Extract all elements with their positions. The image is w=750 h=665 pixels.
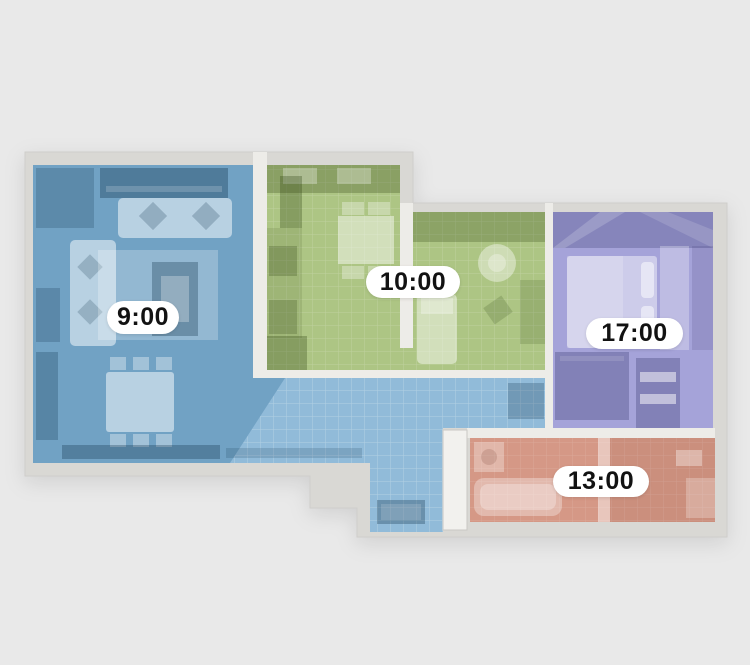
curtain xyxy=(337,168,371,184)
wardrobe-rail xyxy=(106,186,222,192)
shelf-unit xyxy=(36,168,94,228)
time-label-bathroom[interactable]: 13:00 xyxy=(553,466,649,497)
doormat-inner xyxy=(381,504,421,520)
wardrobe xyxy=(100,168,228,198)
hall-cabinet xyxy=(508,383,544,419)
low-cabinet xyxy=(226,448,362,458)
dresser xyxy=(555,352,629,420)
bathtub-inner xyxy=(480,484,556,510)
shelf xyxy=(640,394,676,404)
desk xyxy=(520,280,545,344)
dining-chair xyxy=(156,357,172,370)
radiator xyxy=(36,288,60,342)
time-label-bedroom[interactable]: 17:00 xyxy=(586,318,683,349)
stove xyxy=(269,246,297,276)
floorplan-canvas: 9:00 10:00 17:00 13:00 xyxy=(0,0,750,665)
dining-chair xyxy=(110,357,126,370)
shower xyxy=(686,478,715,518)
washer-door xyxy=(481,449,497,465)
kitchen-chair xyxy=(342,266,364,279)
side-shelf xyxy=(692,246,713,350)
time-label-living-room[interactable]: 9:00 xyxy=(107,301,179,334)
entrance-door xyxy=(443,430,467,530)
fridge xyxy=(267,336,307,370)
dining-chair xyxy=(133,357,149,370)
window-band-2 xyxy=(413,212,545,242)
kitchen-chair xyxy=(342,202,364,215)
shelving-unit xyxy=(636,358,680,428)
couch-pillow xyxy=(421,298,453,314)
ottoman-center xyxy=(488,254,506,272)
sink-unit xyxy=(269,300,297,334)
kitchen-table xyxy=(338,216,394,264)
dresser-top xyxy=(560,356,624,361)
shelf xyxy=(640,372,676,382)
dining-table xyxy=(106,372,174,432)
sideboard xyxy=(36,352,58,440)
pillow xyxy=(641,262,654,298)
kitchen-chair xyxy=(368,202,390,215)
time-label-kitchen[interactable]: 10:00 xyxy=(366,266,460,298)
tall-cabinet xyxy=(280,176,302,228)
sink xyxy=(676,450,702,466)
tv-console xyxy=(62,445,220,459)
